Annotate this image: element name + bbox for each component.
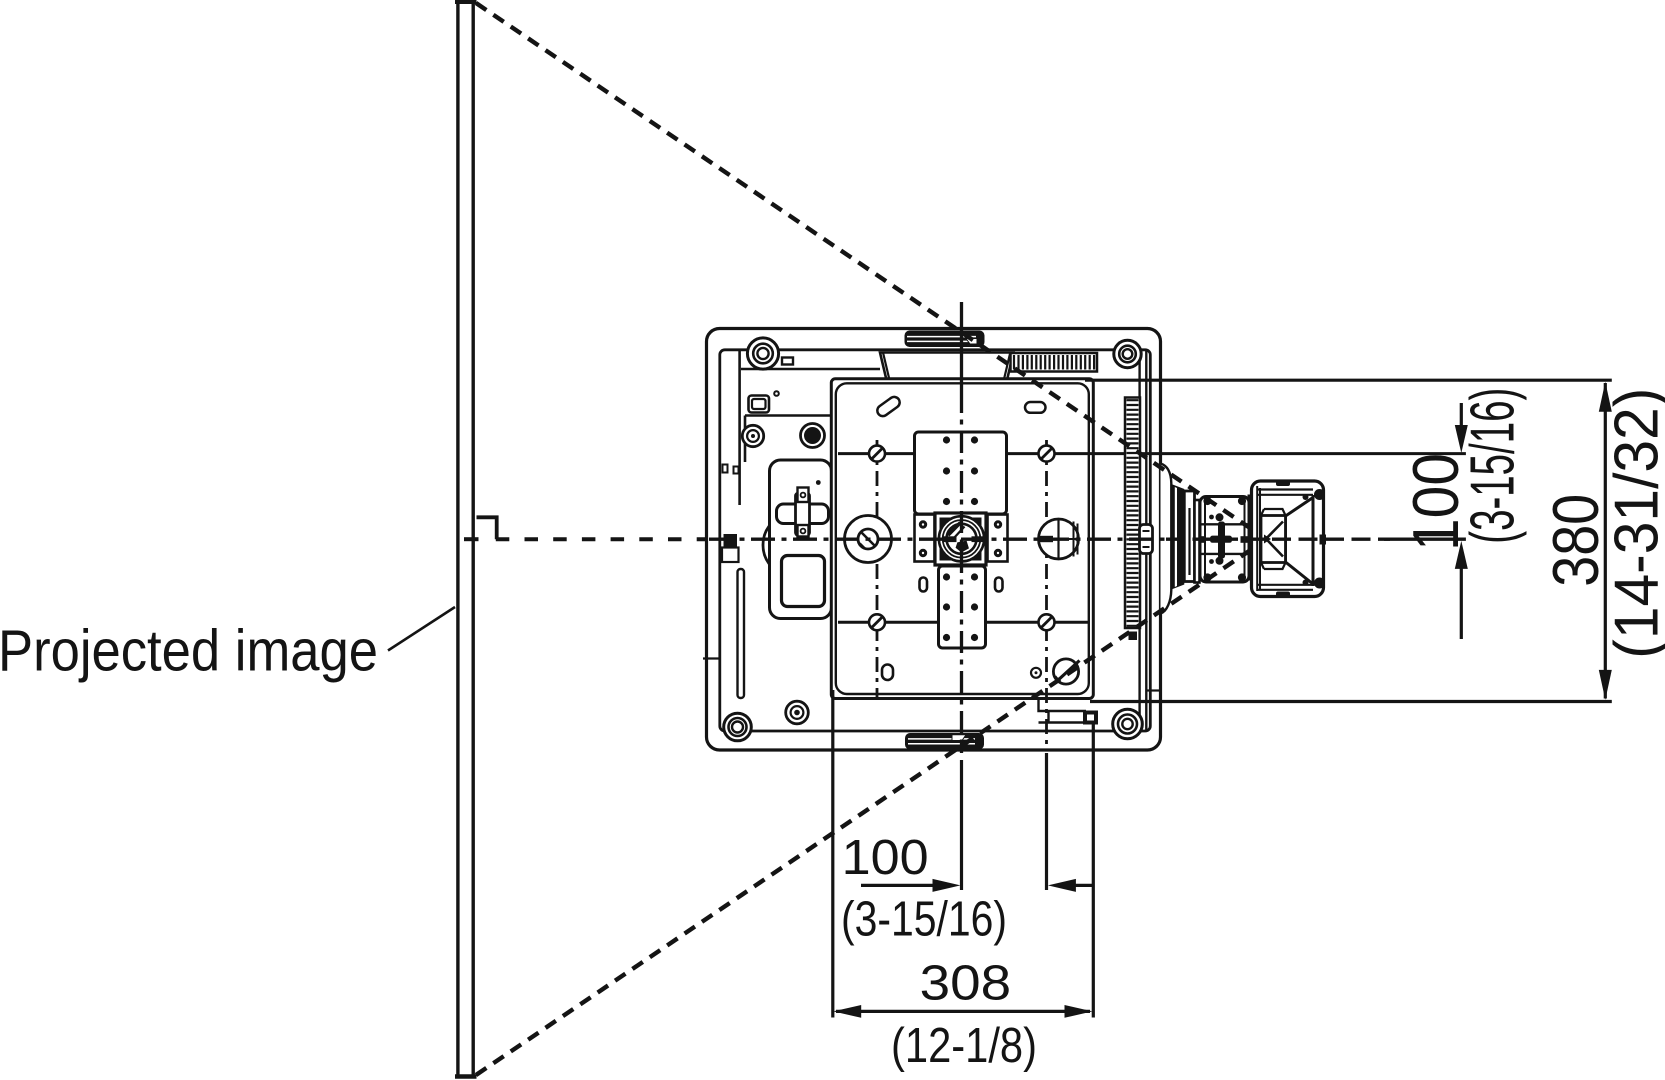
svg-text:100: 100 [842,830,929,885]
svg-text:380: 380 [1539,494,1612,587]
svg-text:Projected image: Projected image [0,619,378,684]
svg-text:(3-15/16): (3-15/16) [841,892,1007,947]
svg-text:(14-31/32): (14-31/32) [1603,388,1665,659]
svg-text:308: 308 [920,955,1012,1010]
svg-text:(12-1/8): (12-1/8) [891,1018,1037,1073]
svg-text:(3-15/16): (3-15/16) [1458,388,1527,544]
